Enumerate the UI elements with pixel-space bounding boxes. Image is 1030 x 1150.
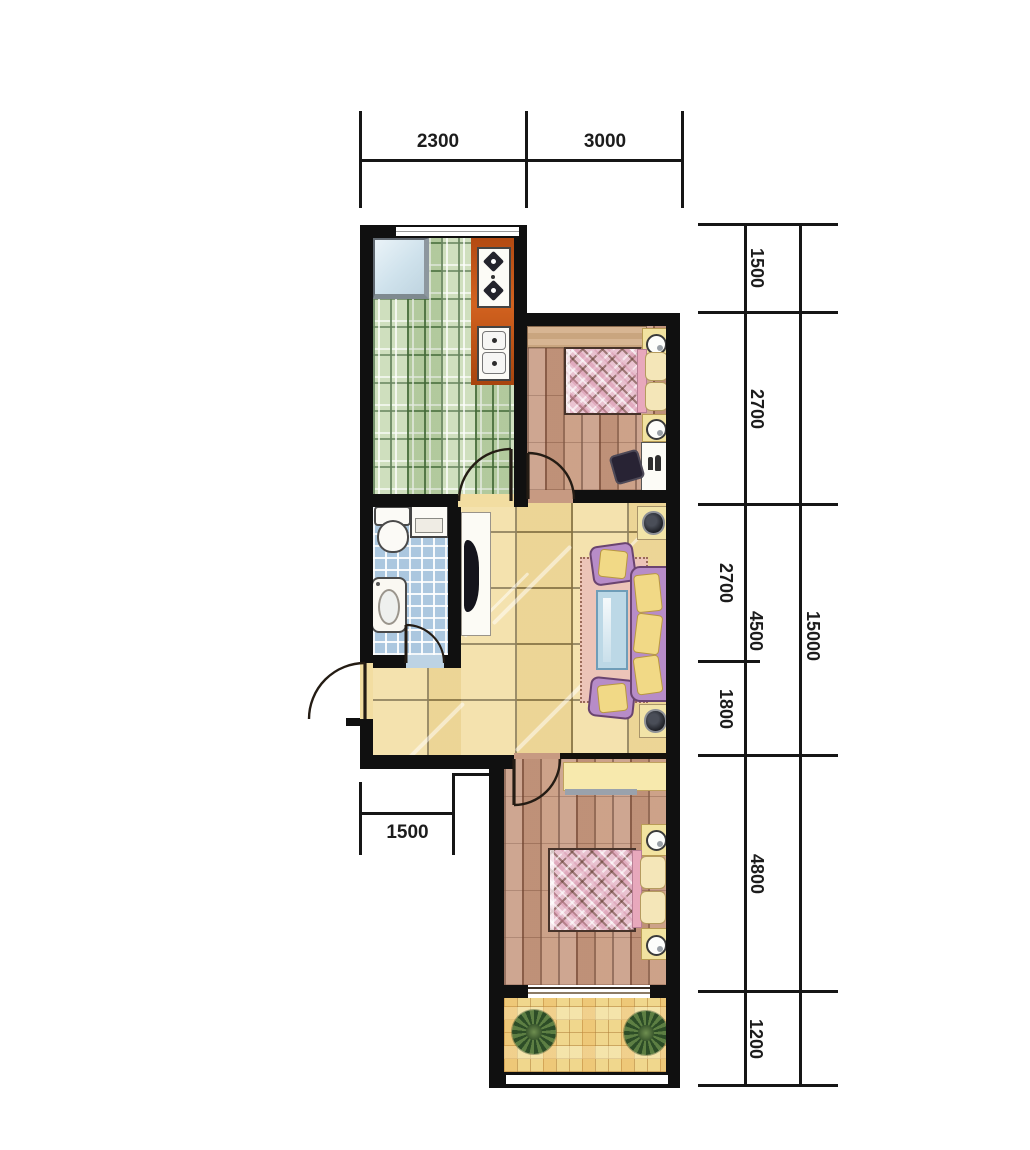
balcony-slider-line — [528, 992, 650, 994]
right-dim-tick — [698, 503, 838, 506]
right-dim-tick — [698, 754, 838, 757]
armchair-cushion — [598, 549, 629, 580]
kitchen-sink — [477, 326, 511, 381]
dim-right-2700a: 2700 — [746, 379, 768, 439]
dresser-shadow — [565, 789, 637, 795]
right-dim-tick — [698, 990, 838, 993]
dim-right-4500: 4500 — [745, 601, 767, 661]
washer-door — [378, 589, 400, 625]
dim-width-bedroom: 3000 — [565, 131, 645, 153]
bathroom-south-wall-east — [444, 655, 461, 668]
sofa-cushion — [633, 613, 664, 656]
kitchen-window-line — [396, 231, 519, 232]
lamp — [646, 830, 667, 851]
kitchen-east-wall — [514, 225, 527, 507]
washing-machine — [371, 577, 407, 633]
top-dim-line — [360, 159, 683, 162]
nightstand — [642, 414, 669, 442]
bedroom1-south-wall-west — [514, 490, 528, 507]
balcony-railing — [506, 1075, 668, 1084]
pillow — [640, 856, 666, 889]
bedroom2-west-wall — [489, 755, 504, 1088]
west-wall — [360, 225, 373, 663]
sofa — [630, 566, 670, 702]
bathroom-door-threshold — [406, 655, 444, 668]
bottom-dim-tick — [359, 782, 362, 855]
sofa-cushion — [632, 654, 663, 695]
refrigerator — [373, 238, 429, 299]
dim-bottom-1500: 1500 — [360, 822, 455, 844]
top-dim-tick — [525, 111, 528, 208]
lamp — [646, 935, 667, 956]
dresser — [563, 762, 668, 791]
entry-door-arc — [309, 663, 365, 719]
lamp — [646, 419, 667, 440]
dim-right-1800: 1800 — [715, 679, 737, 739]
dim-right-total-15000: 15000 — [802, 601, 824, 671]
wardrobe-handle — [648, 457, 653, 470]
nightstand — [641, 928, 669, 960]
kitchen-south-wall — [360, 494, 458, 507]
vanity-basin — [415, 518, 443, 533]
toilet-bowl — [377, 520, 409, 553]
entry-hall-floor — [373, 668, 461, 755]
stove-knob — [491, 275, 495, 279]
dim-right-1500: 1500 — [746, 238, 768, 298]
dim-right-2700b: 2700 — [715, 553, 737, 613]
top-dim-tick — [681, 111, 684, 208]
floor-plan-canvas: 2300 3000 1500 2700 2700 1800 4500 4800 … — [0, 0, 1030, 1150]
dim-right-4800: 4800 — [746, 844, 768, 904]
bed — [564, 347, 641, 415]
bedroom2-north-wall — [560, 753, 667, 759]
right-dim-tick — [698, 223, 838, 226]
pillow — [645, 382, 668, 411]
entry-door-stop — [346, 718, 364, 726]
balcony-slider — [528, 987, 650, 989]
bedroom2-south-stub-west — [504, 985, 528, 998]
burner-icon — [483, 251, 504, 272]
bedroom2-south-stub-east — [650, 985, 680, 998]
potted-plant — [624, 1011, 668, 1055]
bed — [548, 848, 636, 932]
vanity-sink — [410, 505, 449, 538]
pillow — [645, 352, 668, 381]
bedroom1-door-threshold — [528, 490, 573, 503]
kitchen-door-threshold — [458, 494, 514, 507]
stove — [477, 247, 511, 308]
burner-icon — [483, 280, 504, 301]
dim-width-kitchen: 2300 — [398, 131, 478, 153]
right-dim-tick — [698, 1084, 838, 1087]
wardrobe-handle — [655, 455, 661, 471]
bedroom2-door-threshold — [514, 753, 560, 759]
east-wall — [666, 313, 680, 1088]
potted-plant — [512, 1010, 556, 1054]
pillow — [640, 891, 666, 924]
sofa-cushion — [633, 573, 663, 614]
dim-right-1200: 1200 — [745, 1009, 767, 1069]
bathroom-east-wall — [448, 494, 461, 668]
coffee-table — [596, 590, 628, 670]
bedroom1-south-wall — [573, 490, 680, 503]
nightstand — [641, 824, 669, 856]
bedroom1-north-wall — [527, 313, 680, 326]
armchair-cushion — [597, 683, 629, 714]
bottom-dim-connector — [452, 773, 489, 776]
entry-door-threshold — [360, 663, 373, 719]
bottom-dim-line — [360, 812, 455, 815]
top-dim-tick — [359, 111, 362, 208]
right-dim-tick — [698, 311, 838, 314]
washer-knob — [376, 582, 380, 586]
closet — [527, 326, 647, 348]
